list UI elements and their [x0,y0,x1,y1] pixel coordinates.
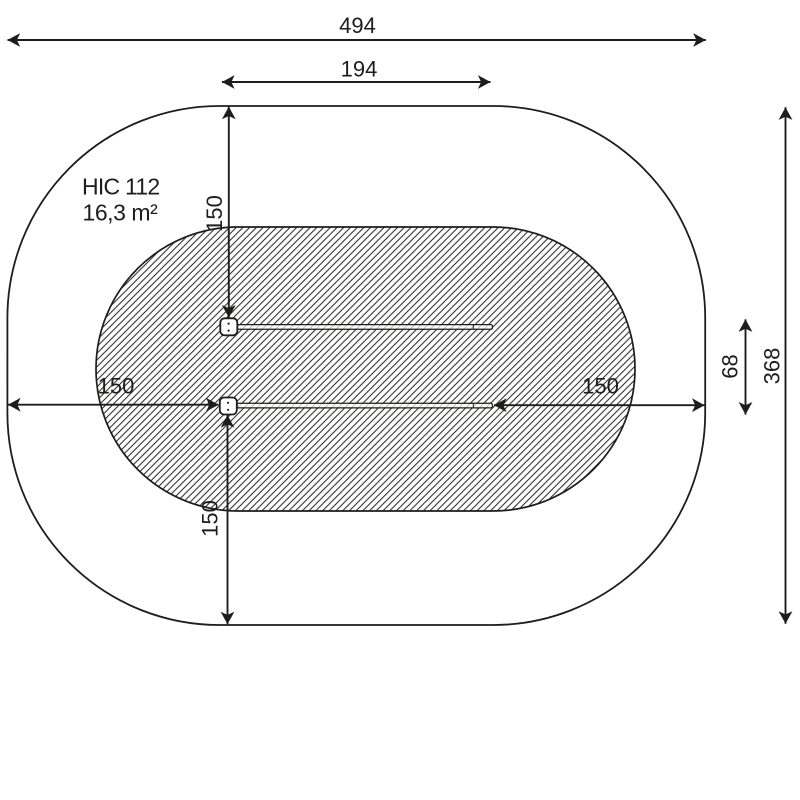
svg-text:368: 368 [760,348,785,385]
svg-text:HIC 112: HIC 112 [82,174,159,200]
svg-text:194: 194 [341,57,378,82]
svg-text:494: 494 [339,13,376,38]
svg-text:68: 68 [718,354,743,378]
svg-text:16,3 m²: 16,3 m² [83,200,159,226]
svg-text:150: 150 [202,195,227,232]
svg-text:150: 150 [198,500,223,537]
svg-text:150: 150 [98,374,135,399]
svg-text:150: 150 [582,374,619,399]
